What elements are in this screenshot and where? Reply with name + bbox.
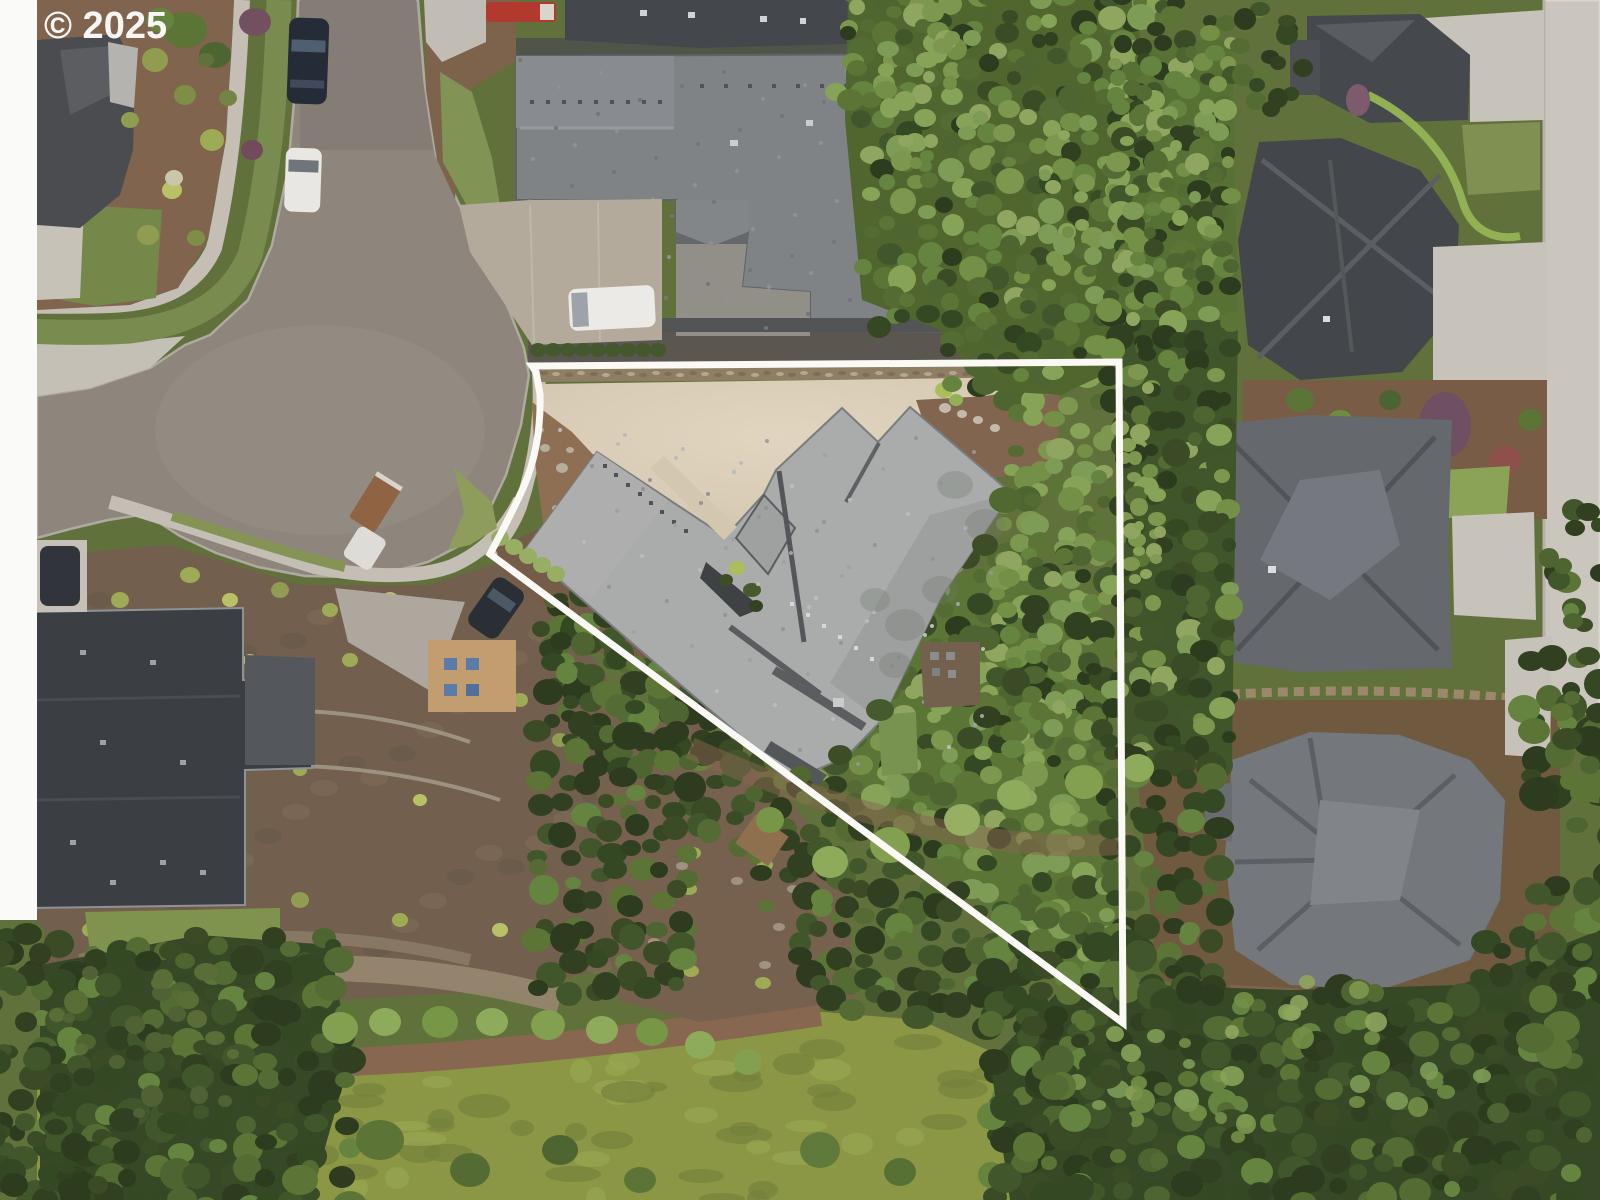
svg-text:© 2025: © 2025	[44, 5, 167, 47]
